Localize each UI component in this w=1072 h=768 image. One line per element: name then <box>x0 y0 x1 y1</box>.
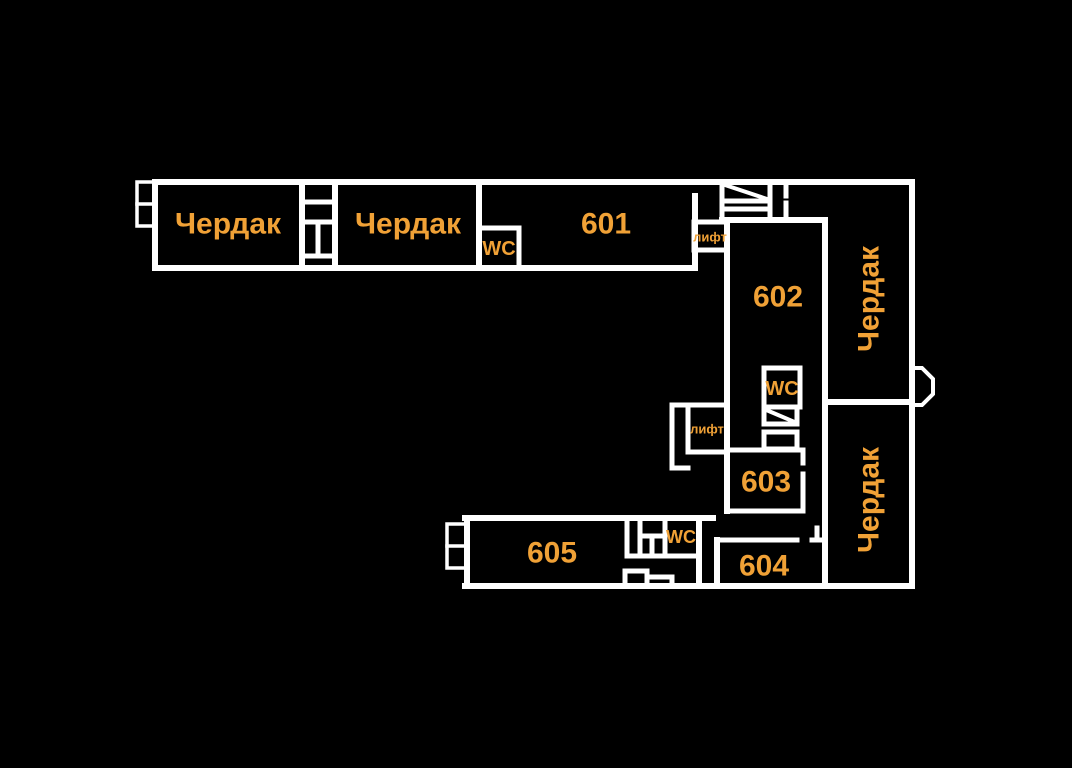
room-602-label: 602 <box>753 281 803 314</box>
floor-plan-canvas: Чердак Чердак 601 WC лифт 602 WC лифт Че… <box>0 0 1072 768</box>
attic-right-lower-label: Чердак <box>853 446 886 553</box>
attic-top-middle-label: Чердак <box>355 208 462 241</box>
bay-window <box>912 368 933 405</box>
walls-inner <box>302 182 825 586</box>
room-601-label: 601 <box>581 208 631 241</box>
lift-lower-label: лифт <box>690 422 724 437</box>
stairs-icon <box>764 409 797 423</box>
room-605-label: 605 <box>527 537 577 570</box>
room-603-label: 603 <box>741 466 791 499</box>
room-604-label: 604 <box>739 550 789 583</box>
attic-top-left-label: Чердак <box>175 208 282 241</box>
wc-middle-label: WC <box>765 378 798 400</box>
stairs-icon <box>722 184 770 200</box>
floor-plan: Чердак Чердак 601 WC лифт 602 WC лифт Че… <box>0 0 1072 768</box>
attic-right-upper-label: Чердак <box>853 245 886 352</box>
lift-upper-label: лифт <box>693 230 727 245</box>
room-labels: Чердак Чердак 601 WC лифт 602 WC лифт Че… <box>175 208 886 583</box>
wc-bottom-label: WC <box>666 527 696 547</box>
wc-top-label: WC <box>482 238 515 260</box>
